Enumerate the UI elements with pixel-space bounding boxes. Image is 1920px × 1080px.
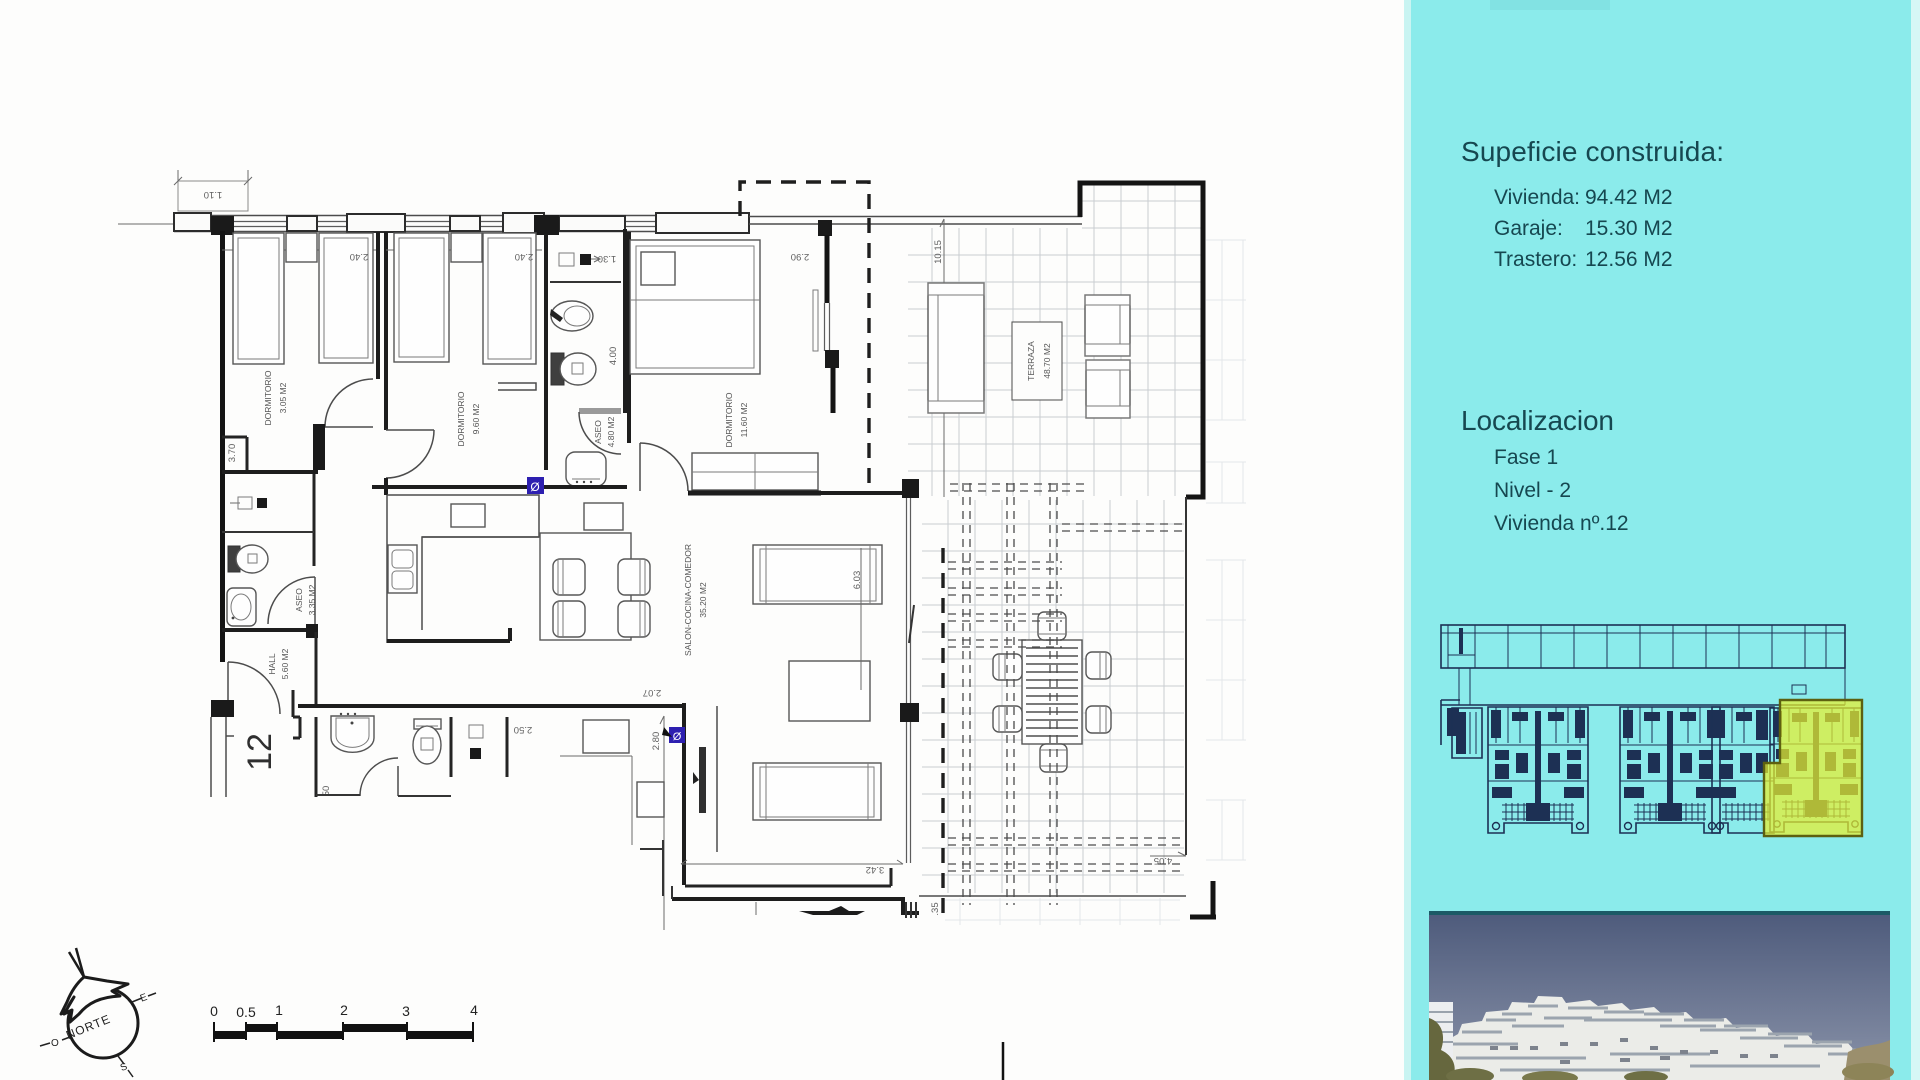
svg-text:Fase 1: Fase 1	[1494, 446, 1558, 469]
svg-text:Nivel - 2: Nivel - 2	[1494, 479, 1571, 502]
svg-text:4.80 M2: 4.80 M2	[606, 416, 616, 447]
svg-text:Localizacion: Localizacion	[1461, 405, 1614, 436]
svg-text:3.35 M2: 3.35 M2	[307, 584, 317, 615]
svg-text:ASEO: ASEO	[294, 588, 304, 612]
svg-text:3.70: 3.70	[227, 444, 238, 463]
svg-text:Ø: Ø	[673, 731, 682, 743]
svg-text:HALL: HALL	[267, 653, 277, 675]
svg-text:TERRAZA: TERRAZA	[1026, 341, 1036, 381]
svg-text:12: 12	[241, 733, 279, 771]
svg-text:1.10: 1.10	[204, 189, 223, 200]
svg-text:.35: .35	[930, 902, 941, 915]
svg-text:48.70 M2: 48.70 M2	[1042, 343, 1052, 379]
svg-text:2: 2	[340, 1002, 348, 1018]
svg-text:35.20 M2: 35.20 M2	[698, 582, 708, 618]
svg-text:Vivienda:: Vivienda:	[1494, 186, 1580, 209]
svg-text:SALON-COCINA-COMEDOR: SALON-COCINA-COMEDOR	[683, 544, 693, 656]
svg-text:Garaje:: Garaje:	[1494, 217, 1563, 240]
svg-text:Trastero:: Trastero:	[1494, 248, 1577, 271]
svg-text:2.80: 2.80	[651, 732, 662, 751]
svg-text:DORMITORIO: DORMITORIO	[456, 391, 466, 446]
svg-text:3.05 M2: 3.05 M2	[278, 382, 288, 413]
svg-text:DORMITORIO: DORMITORIO	[263, 370, 273, 425]
svg-text:2.40: 2.40	[350, 251, 369, 262]
svg-text:11.60 M2: 11.60 M2	[739, 402, 749, 437]
svg-text:ASEO: ASEO	[593, 420, 603, 444]
svg-text:1: 1	[275, 1002, 283, 1018]
svg-text:6.03: 6.03	[852, 571, 863, 590]
svg-text:5.60 M2: 5.60 M2	[280, 648, 290, 679]
svg-text:2.50: 2.50	[514, 724, 533, 735]
svg-text:9.60 M2: 9.60 M2	[471, 403, 481, 434]
svg-text:2.90: 2.90	[791, 251, 810, 262]
svg-text:2.07: 2.07	[643, 687, 662, 698]
svg-text:15.30 M2: 15.30 M2	[1585, 217, 1673, 240]
svg-text:94.42 M2: 94.42 M2	[1585, 186, 1673, 209]
svg-text:DORMITORIO: DORMITORIO	[724, 392, 734, 447]
svg-text:Ø: Ø	[530, 480, 539, 494]
svg-text:4.00: 4.00	[608, 347, 619, 366]
svg-text:1.30: 1.30	[598, 253, 617, 264]
svg-text:0: 0	[210, 1003, 218, 1019]
svg-text:0.5: 0.5	[236, 1004, 256, 1020]
svg-text:12.56 M2: 12.56 M2	[1585, 248, 1673, 271]
svg-text:4: 4	[470, 1002, 478, 1018]
svg-text:Supeficie construida:: Supeficie construida:	[1461, 136, 1724, 167]
svg-text:2.40: 2.40	[515, 251, 534, 262]
svg-text:3.42: 3.42	[866, 864, 885, 875]
svg-text:Vivienda nº.12: Vivienda nº.12	[1494, 512, 1629, 535]
svg-text:O: O	[51, 1038, 59, 1049]
svg-text:3: 3	[402, 1003, 410, 1019]
svg-text:10.15: 10.15	[933, 240, 944, 264]
